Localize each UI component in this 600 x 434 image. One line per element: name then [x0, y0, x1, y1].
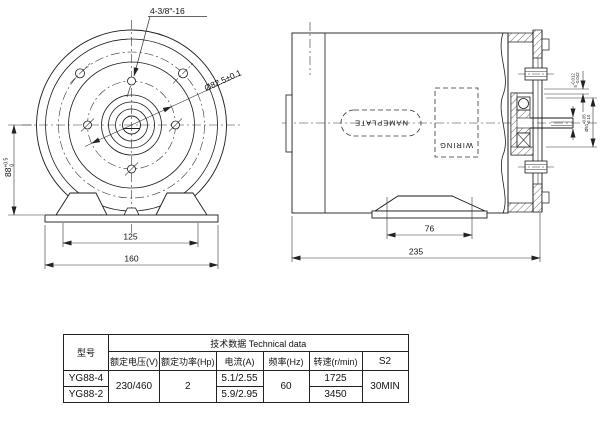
current-row2-cell: 5.9/2.95 — [216, 387, 263, 403]
col-current: 电流(A) — [216, 352, 263, 371]
right-gusset — [156, 193, 207, 215]
nameplate-text: NAMEPLATE — [354, 119, 408, 128]
bearing-hub — [511, 93, 533, 155]
side-foot-plate — [372, 211, 487, 218]
base-plate — [45, 215, 218, 222]
power-cell: 2 — [160, 371, 217, 403]
model-yg88-2: YG88-2 — [64, 387, 109, 403]
thread-callout: 4-3/8"-16 — [127, 6, 207, 97]
left-gusset — [56, 193, 107, 215]
keyway-dim-text: 5-0.012-0.042 — [571, 72, 581, 88]
technical-data-table: 型号 技术数据 Technical data 额定电压(V) 额定功率(Hp) … — [63, 334, 409, 403]
col-frequency: 频率(Hz) — [263, 352, 309, 371]
thread-callout-text: 4-3/8"-16 — [150, 6, 185, 16]
model-header-cell: 型号 — [64, 335, 109, 371]
speed-row1-cell: 1725 — [309, 371, 362, 387]
frequency-cell: 60 — [263, 371, 309, 403]
voltage-cell: 230/460 — [109, 371, 160, 403]
side-gusset — [375, 196, 485, 211]
bolt-circle-dim-text: Ø82.5±0.1 — [203, 67, 243, 93]
hub-dia-text: Ø51-0.05-0.10 — [582, 114, 592, 132]
keyway-dim: 5-0.012-0.042 — [544, 71, 589, 112]
duty-cell: 30MIN — [362, 371, 408, 403]
table-title-cell: 技术数据 Technical data — [109, 335, 409, 352]
speed-row2-cell: 3450 — [309, 387, 362, 403]
base-width-dim-text: 160 — [124, 254, 138, 264]
col-duty: S2 — [362, 352, 408, 371]
col-speed: 转速(r/min) — [309, 352, 362, 371]
overall-length-dim: 235 — [292, 213, 540, 262]
col-voltage: 额定电压(V) — [109, 352, 160, 371]
front-view: 4-3/8"-16 Ø82.5±0.1 88+0.50 125 — [3, 6, 243, 269]
engineering-drawing: 4-3/8"-16 Ø82.5±0.1 88+0.50 125 — [0, 0, 600, 434]
side-view: NAMEPLATE WIRING — [282, 22, 600, 262]
foot-hole-dim: 125 — [63, 223, 198, 247]
foot-hole-dim-text: 125 — [123, 232, 137, 242]
wiring-box: WIRING — [435, 88, 478, 157]
hub-dia-dim: Ø51-0.05-0.10 — [546, 98, 597, 147]
current-row1-cell: 5.1/2.55 — [216, 371, 263, 387]
bolt-circle-dim: Ø82.5±0.1 — [85, 67, 243, 146]
center-height-text: 88+0.50 — [3, 157, 16, 177]
table-row: YG88-4 230/460 2 5.1/2.55 60 1725 30MIN — [64, 371, 409, 387]
model-yg88-4: YG88-4 — [64, 371, 109, 387]
wiring-text: WIRING — [439, 141, 473, 150]
overall-length-text: 235 — [409, 247, 423, 257]
foot-length-text: 76 — [425, 224, 435, 234]
col-power: 额定功率(Hp) — [160, 352, 217, 371]
